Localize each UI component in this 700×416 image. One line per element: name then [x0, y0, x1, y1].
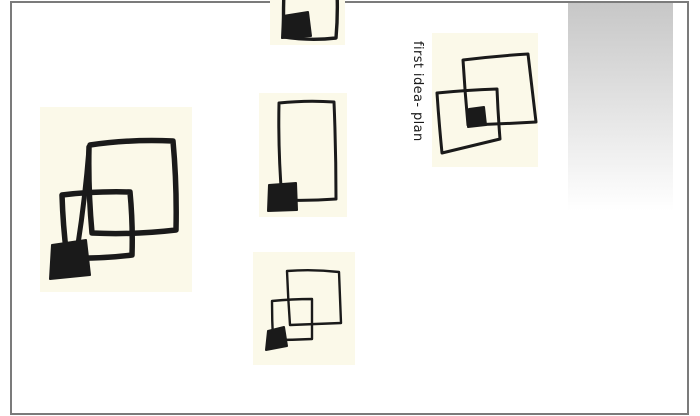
- gradient-bar: [568, 3, 673, 211]
- tilted-overlapping-squares-sketch: [432, 33, 538, 167]
- sketch-note-left: [40, 107, 192, 292]
- filled-square: [266, 327, 287, 350]
- sketch-note-top: [270, 0, 345, 45]
- sketch-note-right: [432, 33, 538, 167]
- overlapping-squares-sketch: [253, 252, 355, 365]
- filled-square: [268, 183, 297, 211]
- sketch-note-middle: [259, 93, 347, 217]
- squares-sketch: [270, 0, 345, 45]
- rectangle-sketch: [259, 93, 347, 217]
- filled-square: [50, 240, 90, 279]
- page-canvas: first idea- plan: [0, 0, 700, 416]
- sketch-note-bottom: [253, 252, 355, 365]
- filled-square: [468, 107, 486, 127]
- overlapping-squares-sketch: [40, 107, 192, 292]
- caption-first-idea-plan: first idea- plan: [403, 41, 425, 163]
- large-square-outline: [287, 270, 341, 325]
- filled-square: [282, 12, 311, 38]
